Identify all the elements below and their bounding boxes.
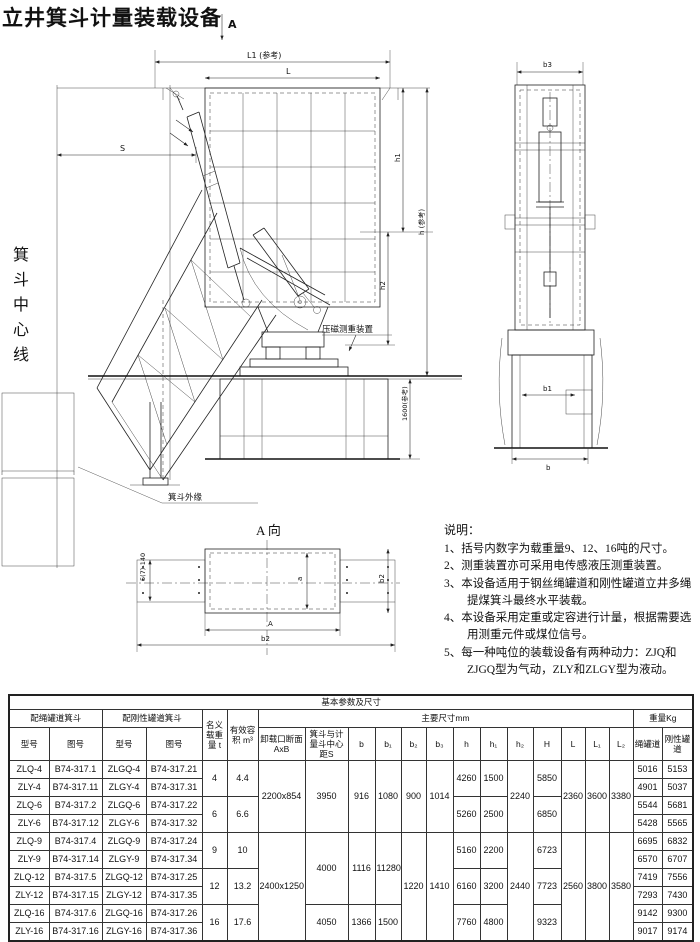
table-cell: B74-317.15: [49, 887, 102, 905]
table-cell: 9174: [662, 923, 693, 942]
spec-table-body: ZLQ-4B74-317.1ZLGQ-4B74-317.2144.42200x8…: [9, 761, 693, 942]
table-cell: ZLY-12: [9, 887, 49, 905]
table-cell: 3800: [585, 833, 609, 942]
inclined-chute: [97, 190, 276, 480]
section-marker-a-label: A: [228, 18, 237, 31]
table-cell: B74-317.21: [146, 761, 202, 779]
table-cell: 5681: [662, 797, 693, 815]
table-cell: 3380: [609, 761, 633, 833]
table-cell: 5160: [453, 833, 480, 869]
note-item: 4、本设备采用定重或定容进行计量，根据需要选用测重元件或煤位信号。: [444, 610, 698, 645]
a-view-inner-width-dim-label: A: [268, 620, 273, 628]
table-row: ZLQ-4B74-317.1ZLGQ-4B74-317.2144.42200x8…: [9, 761, 693, 779]
main-front-view: L1 (参考) L S h1 h2 h (参考) 1600(参考) 压磁测重装置…: [2, 50, 462, 568]
notes-block: 说明： 1、括号内数字为载重量9、12、16吨的尺寸。 2、测重装置亦可采用电传…: [444, 521, 698, 679]
a-view-bolts: [142, 566, 389, 594]
table-cell: 13.2: [227, 869, 258, 905]
table-cell: 4260: [453, 761, 480, 797]
table-cell: b: [348, 728, 375, 761]
table-cell: ZLQ-12: [9, 869, 49, 887]
a-view-right-dim-label: b2: [378, 574, 386, 583]
table-cell: 900: [401, 761, 426, 833]
table-cell: 2200: [480, 833, 507, 869]
table-cell: 2240: [507, 761, 533, 833]
table-cell: 4000: [305, 833, 348, 905]
table-cell: B74-317.11: [49, 779, 102, 797]
table-cell: ZLGQ-9: [102, 833, 146, 851]
table-cell: 基本参数及尺寸: [9, 695, 693, 710]
note-item: 3、本设备适用于钢丝绳罐道和刚性罐道立井多绳提煤箕斗最终水平装载。: [444, 576, 698, 611]
table-cell: 6723: [533, 833, 561, 869]
table-row: ZLQ-9B74-317.4ZLGQ-9B74-317.249102400x12…: [9, 833, 693, 851]
table-cell: ZLGY-16: [102, 923, 146, 942]
table-cell: 1500: [480, 761, 507, 797]
dim-b-label: b: [546, 464, 551, 472]
a-direction-view: A 向 5(7)-140 a b2 A b2: [126, 523, 400, 655]
table-cell: B74-317.25: [146, 869, 202, 887]
hydraulic-cylinder-upper: [166, 88, 250, 307]
table-cell: 5260: [453, 797, 480, 833]
table-cell: ZLGQ-12: [102, 869, 146, 887]
table-cell: B74-317.36: [146, 923, 202, 942]
table-cell: 5428: [633, 815, 662, 833]
table-cell: 卸载口断面AxB: [258, 728, 305, 761]
note-item: 2、测重装置亦可采用电传感液压测重装置。: [444, 558, 698, 575]
table-cell: 7556: [662, 869, 693, 887]
table-cell: 9142: [633, 905, 662, 923]
table-cell: ZLQ-9: [9, 833, 49, 851]
table-cell: 名义载重量 t: [202, 710, 227, 761]
table-cell: B74-317.14: [49, 851, 102, 869]
table-cell: B74-317.2: [49, 797, 102, 815]
table-cell: ZLGQ-16: [102, 905, 146, 923]
table-cell: 11280: [375, 833, 401, 905]
table-cell: 图号: [146, 728, 202, 761]
table-cell: 1080: [375, 761, 401, 833]
table-cell: 型号: [9, 728, 49, 761]
dim-h-ref-label: h (参考): [417, 209, 426, 235]
table-cell: B74-317.12: [49, 815, 102, 833]
table-cell: h: [453, 728, 480, 761]
table-cell: 配刚性罐道箕斗: [102, 710, 202, 728]
table-cell: 6707: [662, 851, 693, 869]
table-cell: B74-317.6: [49, 905, 102, 923]
table-cell: b₁: [375, 728, 401, 761]
note-item: 1、括号内数字为载重量9、12、16吨的尺寸。: [444, 541, 698, 558]
side-view: b3: [494, 61, 608, 472]
table-cell: 2440: [507, 833, 533, 942]
dim-L1-label: L1 (参考): [247, 50, 281, 60]
skip-outer-edge-label: 箕斗外缘: [168, 492, 203, 502]
dim-L-label: L: [286, 67, 291, 76]
dim-b1-label: b1: [543, 385, 552, 393]
table-cell: 2360: [561, 761, 585, 833]
spec-table: 基本参数及尺寸配绳罐道箕斗配刚性罐道箕斗名义载重量 t有效容积 m³主要尺寸mm…: [8, 694, 694, 942]
table-cell: 5153: [662, 761, 693, 779]
table-cell: 6695: [633, 833, 662, 851]
table-cell: ZLGY-4: [102, 779, 146, 797]
table-cell: 4901: [633, 779, 662, 797]
table-cell: 5565: [662, 815, 693, 833]
table-cell: B74-317.5: [49, 869, 102, 887]
table-cell: 1116: [348, 833, 375, 905]
spec-table-wrap: 基本参数及尺寸配绳罐道箕斗配刚性罐道箕斗名义载重量 t有效容积 m³主要尺寸mm…: [8, 694, 692, 942]
table-cell: 5016: [633, 761, 662, 779]
table-cell: 12: [202, 869, 227, 905]
table-cell: ZLGY-12: [102, 887, 146, 905]
table-cell: 5037: [662, 779, 693, 797]
table-cell: 2400x1250: [258, 833, 305, 942]
table-cell: ZLQ-16: [9, 905, 49, 923]
table-cell: b₃: [426, 728, 453, 761]
measuring-hopper: [57, 88, 430, 307]
table-cell: ZLY-9: [9, 851, 49, 869]
dim-S-label: S: [120, 144, 125, 153]
table-cell: 6570: [633, 851, 662, 869]
table-cell: B74-317.31: [146, 779, 202, 797]
a-view-title: A 向: [256, 523, 281, 538]
table-cell: 6832: [662, 833, 693, 851]
table-cell: 刚性罐道: [662, 728, 693, 761]
table-cell: 3600: [585, 761, 609, 833]
table-cell: ZLGY-6: [102, 815, 146, 833]
table-cell: ZLQ-6: [9, 797, 49, 815]
table-cell: 7430: [662, 887, 693, 905]
table-cell: 7419: [633, 869, 662, 887]
table-cell: ZLGQ-6: [102, 797, 146, 815]
weighing-device-label: 压磁测重装置: [322, 324, 374, 334]
dim-h1-label: h1: [394, 153, 402, 162]
table-cell: B74-317.32: [146, 815, 202, 833]
sector-gate: [240, 248, 330, 330]
table-cell: B74-317.35: [146, 887, 202, 905]
notes-title: 说明：: [444, 521, 698, 539]
table-cell: 2200x854: [258, 761, 305, 833]
table-cell: 7723: [533, 869, 561, 905]
table-cell: 图号: [49, 728, 102, 761]
table-row: 基本参数及尺寸: [9, 695, 693, 710]
table-cell: 型号: [102, 728, 146, 761]
section-marker-a: A: [222, 14, 237, 40]
table-cell: 7293: [633, 887, 662, 905]
table-cell: 箕斗与计量斗中心距S: [305, 728, 348, 761]
table-cell: B74-317.34: [146, 851, 202, 869]
table-cell: L₁: [585, 728, 609, 761]
table-cell: 916: [348, 761, 375, 833]
note-item: 5、每一种吨位的装载设备有两种动力：ZJQ和ZJGQ型为气动，ZLY和ZLGY型…: [444, 645, 698, 680]
table-cell: ZLGY-9: [102, 851, 146, 869]
table-cell: 1220: [401, 833, 426, 942]
table-cell: 9300: [662, 905, 693, 923]
main-view-dimensions: L1 (参考) L S h1 h2 h (参考) 1600(参考) 压磁测重装置…: [57, 50, 433, 503]
table-cell: 1410: [426, 833, 453, 942]
table-cell: ZLQ-4: [9, 761, 49, 779]
spec-table-head: 基本参数及尺寸配绳罐道箕斗配刚性罐道箕斗名义载重量 t有效容积 m³主要尺寸mm…: [9, 695, 693, 761]
table-cell: L₂: [609, 728, 633, 761]
table-cell: 6.6: [227, 797, 258, 833]
table-cell: 3580: [609, 833, 633, 942]
table-cell: 3200: [480, 869, 507, 905]
table-cell: 2500: [480, 797, 507, 833]
table-cell: h₂: [507, 728, 533, 761]
table-cell: ZLY-6: [9, 815, 49, 833]
table-cell: h₁: [480, 728, 507, 761]
table-row: 型号图号型号图号卸载口断面AxB箕斗与计量斗中心距Sbb₁b₂b₃hh₁h₂HL…: [9, 728, 693, 761]
table-row: 配绳罐道箕斗配刚性罐道箕斗名义载重量 t有效容积 m³主要尺寸mm重量Kg: [9, 710, 693, 728]
table-cell: B74-317.1: [49, 761, 102, 779]
support-pedestal: [240, 307, 348, 376]
table-cell: 3950: [305, 761, 348, 833]
table-cell: B74-317.22: [146, 797, 202, 815]
table-cell: H: [533, 728, 561, 761]
table-cell: b₂: [401, 728, 426, 761]
a-view-left-dim-label: 5(7)-140: [139, 553, 147, 581]
table-cell: 6850: [533, 797, 561, 833]
table-cell: 5544: [633, 797, 662, 815]
table-cell: B74-317.26: [146, 905, 202, 923]
side-view-cylinder: [536, 92, 564, 325]
table-cell: L: [561, 728, 585, 761]
table-cell: 10: [227, 833, 258, 869]
skip-outline: [2, 393, 74, 566]
hydraulic-cylinder-lower: [253, 228, 321, 314]
table-cell: ZLY-16: [9, 923, 49, 942]
table-cell: 重量Kg: [633, 710, 693, 728]
table-cell: 主要尺寸mm: [258, 710, 633, 728]
dim-h2-label: h2: [379, 281, 387, 290]
table-cell: ZLY-4: [9, 779, 49, 797]
a-view-outer-width-dim-label: b2: [261, 635, 270, 643]
a-view-inner-vertical-dim-label: a: [296, 577, 304, 581]
table-cell: 4: [202, 761, 227, 797]
dim-1600-ref-label: 1600(参考): [400, 386, 409, 421]
table-cell: 9017: [633, 923, 662, 942]
table-cell: 4.4: [227, 761, 258, 797]
table-cell: 9: [202, 833, 227, 869]
table-cell: B74-317.4: [49, 833, 102, 851]
table-cell: 2560: [561, 833, 585, 942]
table-cell: 绳罐道: [633, 728, 662, 761]
table-cell: 1014: [426, 761, 453, 833]
table-cell: ZLGQ-4: [102, 761, 146, 779]
table-cell: 有效容积 m³: [227, 710, 258, 761]
table-cell: B74-317.24: [146, 833, 202, 851]
table-cell: 配绳罐道箕斗: [9, 710, 102, 728]
table-cell: 5850: [533, 761, 561, 797]
table-cell: B74-317.16: [49, 923, 102, 942]
table-cell: 6160: [453, 869, 480, 905]
table-cell: 6: [202, 797, 227, 833]
dim-b3-label: b3: [543, 61, 552, 69]
